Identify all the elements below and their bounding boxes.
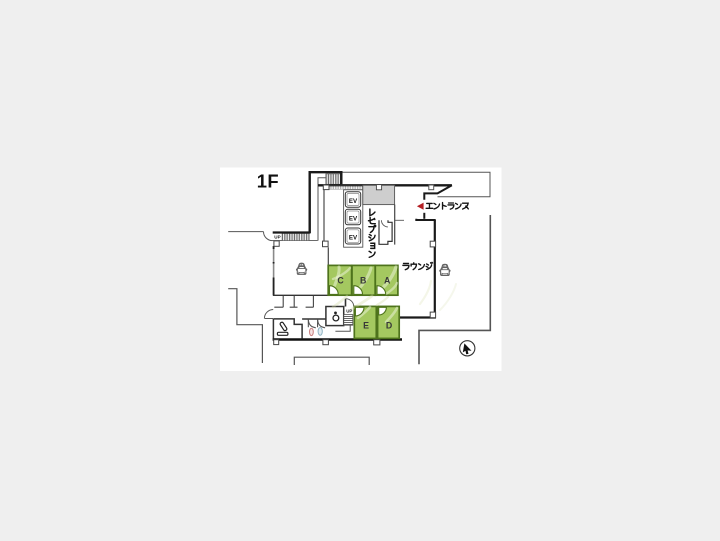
svg-text:C: C — [337, 275, 344, 285]
svg-text:UP: UP — [274, 235, 280, 240]
svg-text:B: B — [360, 275, 366, 285]
svg-text:EV: EV — [349, 198, 358, 205]
svg-text:A: A — [384, 275, 391, 285]
svg-text:EV: EV — [349, 234, 358, 241]
svg-text:EV: EV — [349, 215, 358, 222]
svg-text:D: D — [386, 320, 392, 330]
svg-text:1F: 1F — [257, 171, 279, 192]
svg-text:E: E — [363, 320, 369, 330]
svg-text:UP: UP — [346, 309, 352, 314]
